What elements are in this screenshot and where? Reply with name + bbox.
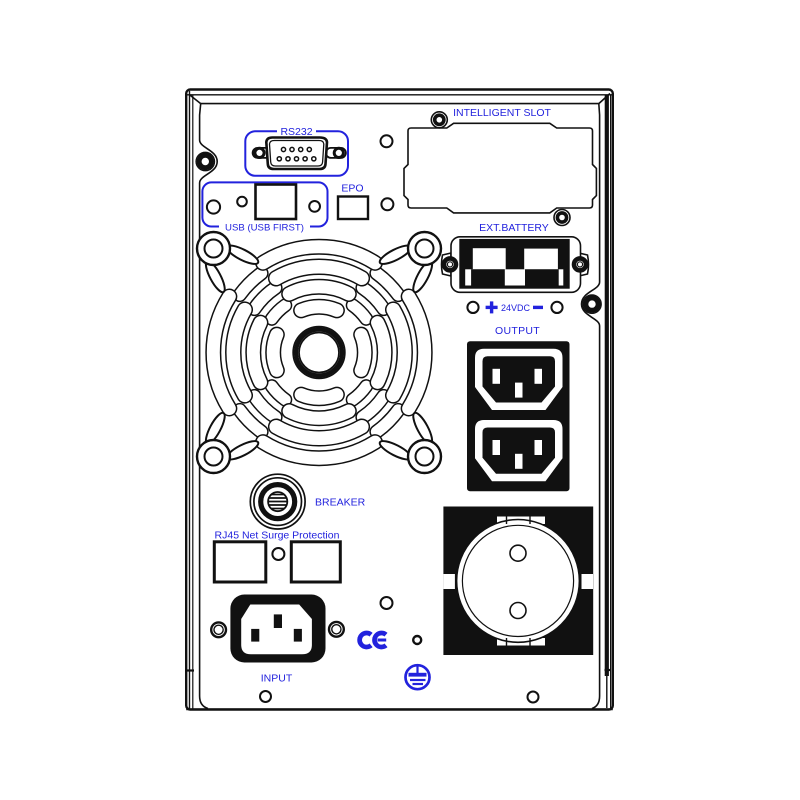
svg-text:RJ45 Net Surge Protection: RJ45 Net Surge Protection [215, 530, 340, 542]
svg-text:EXT.BATTERY: EXT.BATTERY [479, 222, 549, 234]
svg-text:EPO: EPO [341, 183, 363, 195]
svg-text:BREAKER: BREAKER [315, 497, 366, 509]
svg-text:INTELLIGENT SLOT: INTELLIGENT SLOT [453, 107, 551, 119]
svg-text:USB (USB FIRST): USB (USB FIRST) [225, 223, 304, 234]
svg-text:OUTPUT: OUTPUT [495, 325, 540, 337]
svg-text:RS232: RS232 [280, 126, 312, 138]
svg-text:24VDC: 24VDC [501, 303, 531, 313]
svg-text:INPUT: INPUT [261, 673, 293, 685]
